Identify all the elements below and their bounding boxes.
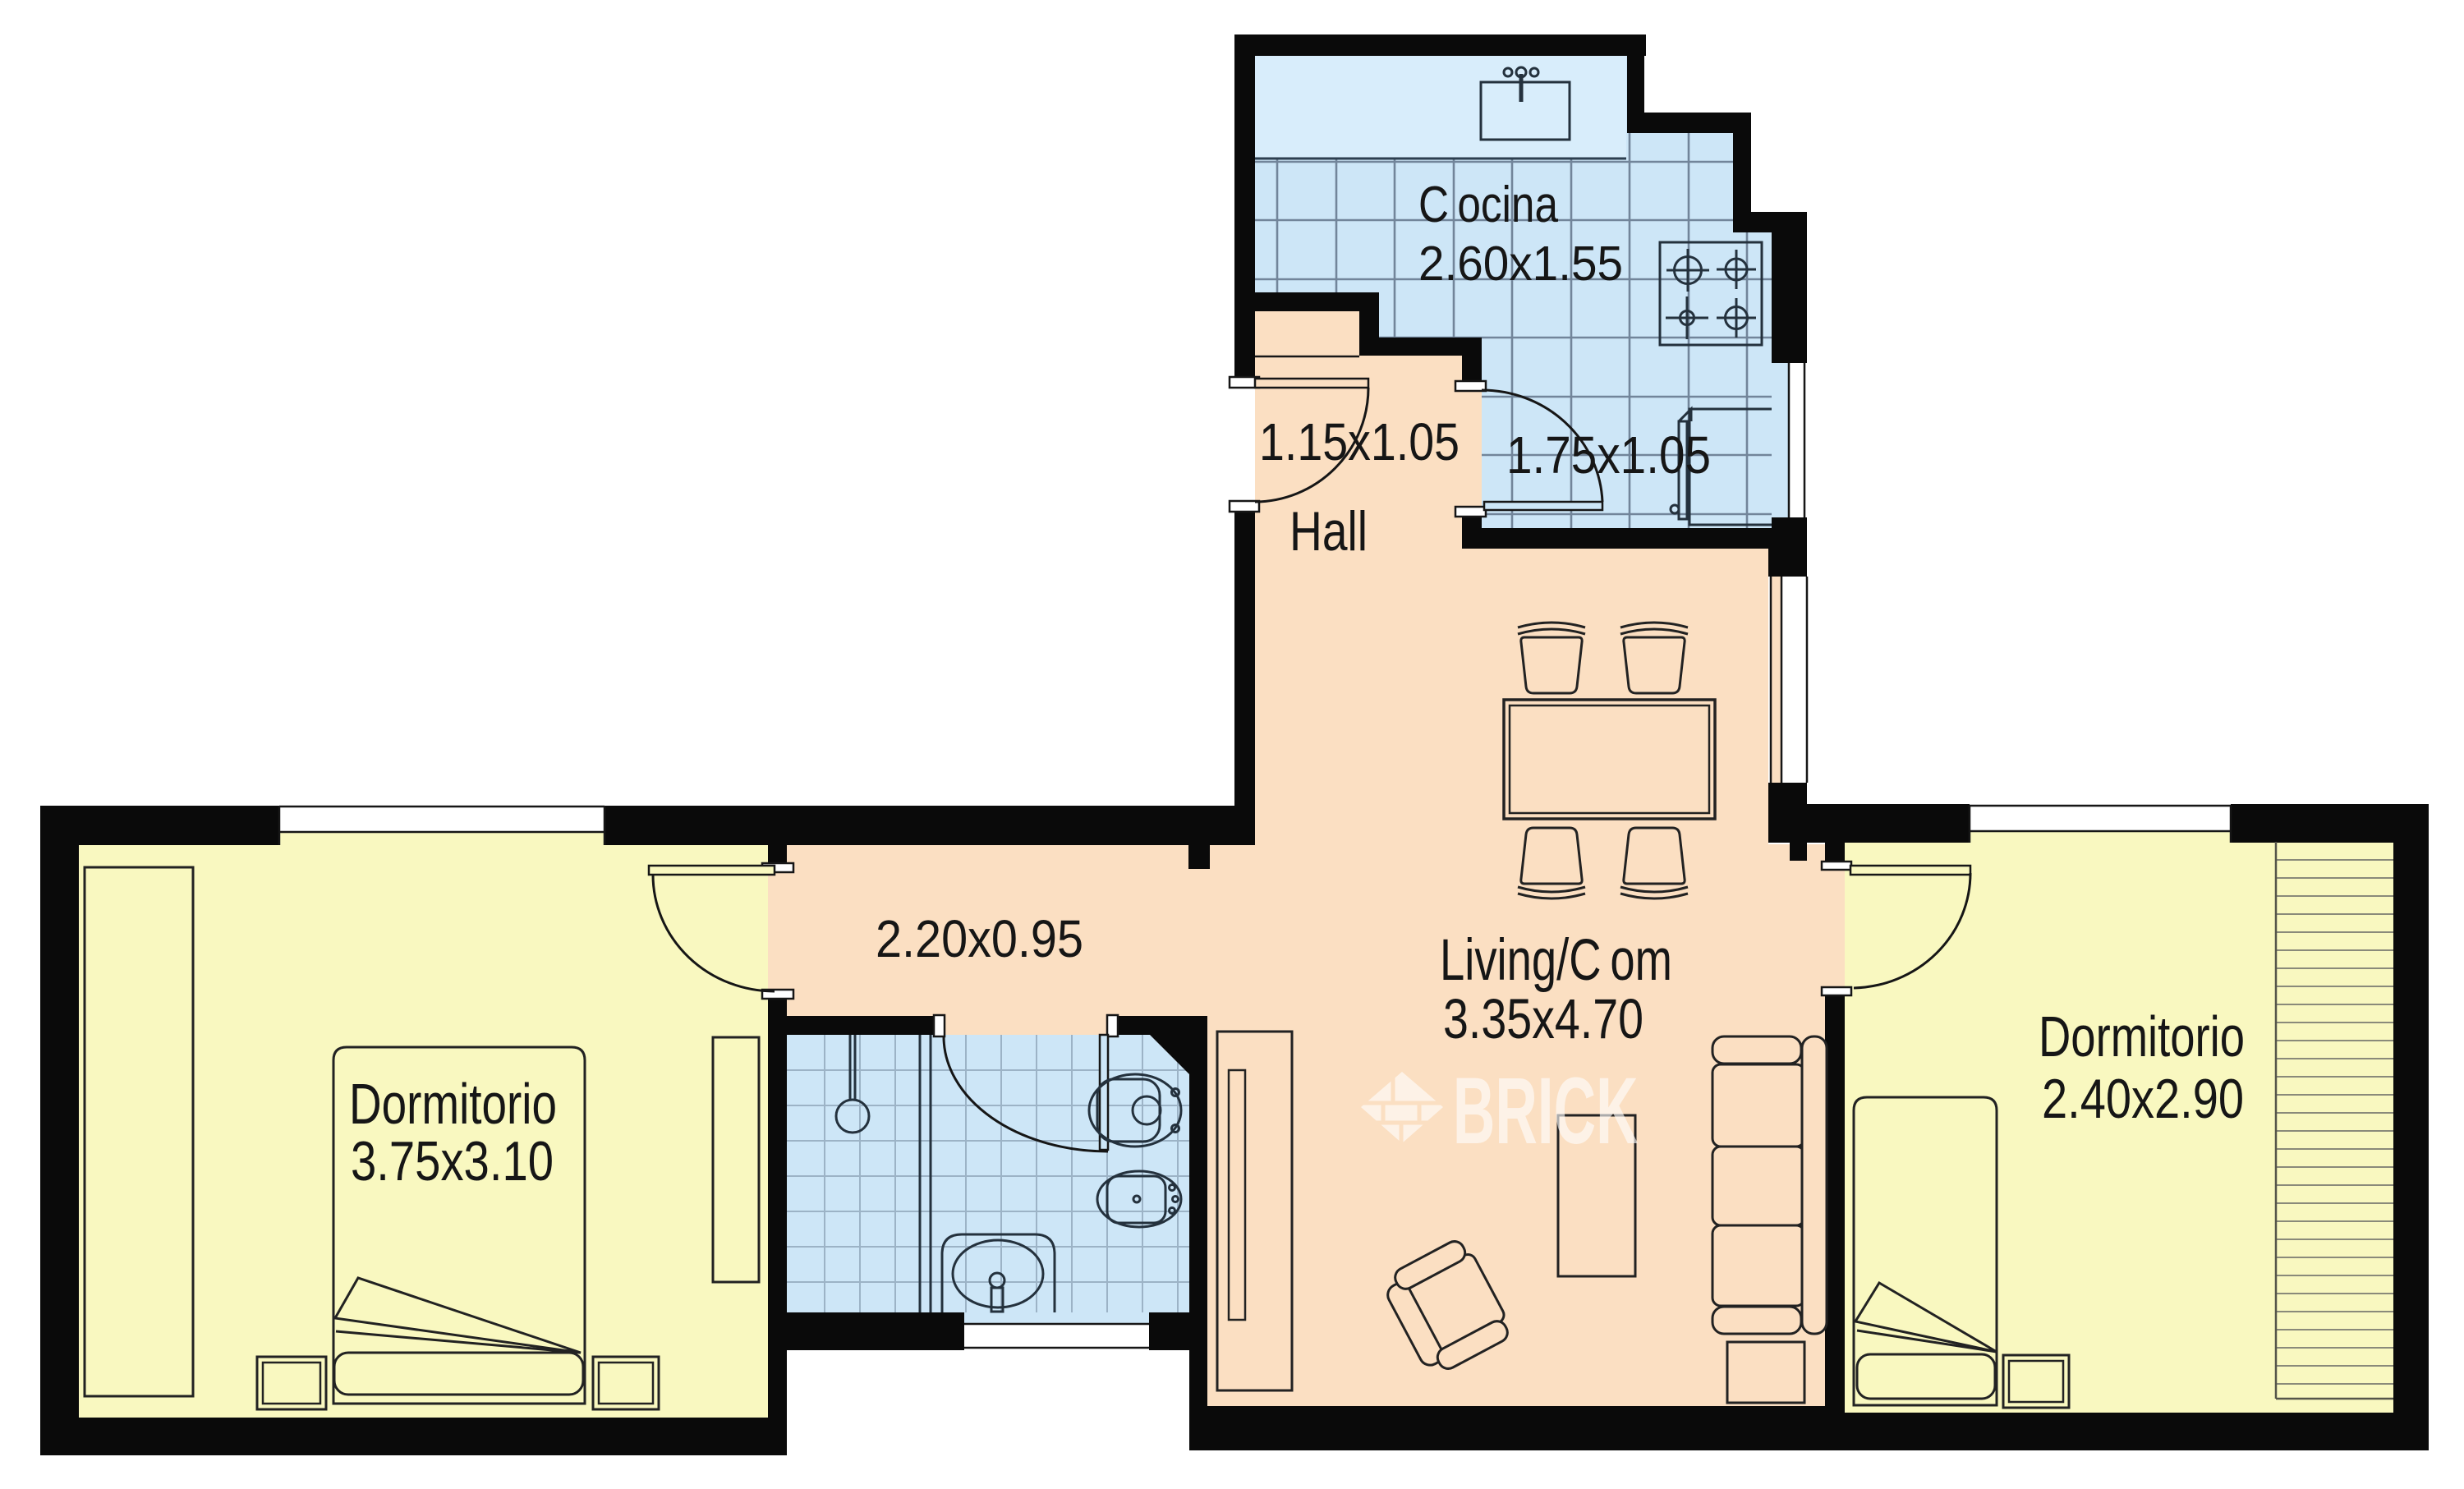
svg-text:2.60x1.55: 2.60x1.55 xyxy=(1418,237,1623,291)
svg-text:Hall: Hall xyxy=(1289,500,1368,563)
svg-text:1.15x1.05: 1.15x1.05 xyxy=(1259,412,1460,471)
svg-text:Living/C om: Living/C om xyxy=(1440,928,1672,993)
svg-text:2.40x2.90: 2.40x2.90 xyxy=(2042,1068,2244,1130)
svg-text:1.75x1.05: 1.75x1.05 xyxy=(1506,425,1711,485)
svg-text:3.35x4.70: 3.35x4.70 xyxy=(1443,987,1643,1050)
svg-text:Dormitorio: Dormitorio xyxy=(2039,1004,2245,1068)
svg-text:2.20x0.95: 2.20x0.95 xyxy=(876,909,1083,968)
svg-text:3.75x3.10: 3.75x3.10 xyxy=(351,1130,554,1193)
svg-text:Dormitorio: Dormitorio xyxy=(349,1072,557,1136)
svg-text:BRICK: BRICK xyxy=(1453,1059,1639,1165)
svg-text:C ocina: C ocina xyxy=(1418,177,1558,233)
